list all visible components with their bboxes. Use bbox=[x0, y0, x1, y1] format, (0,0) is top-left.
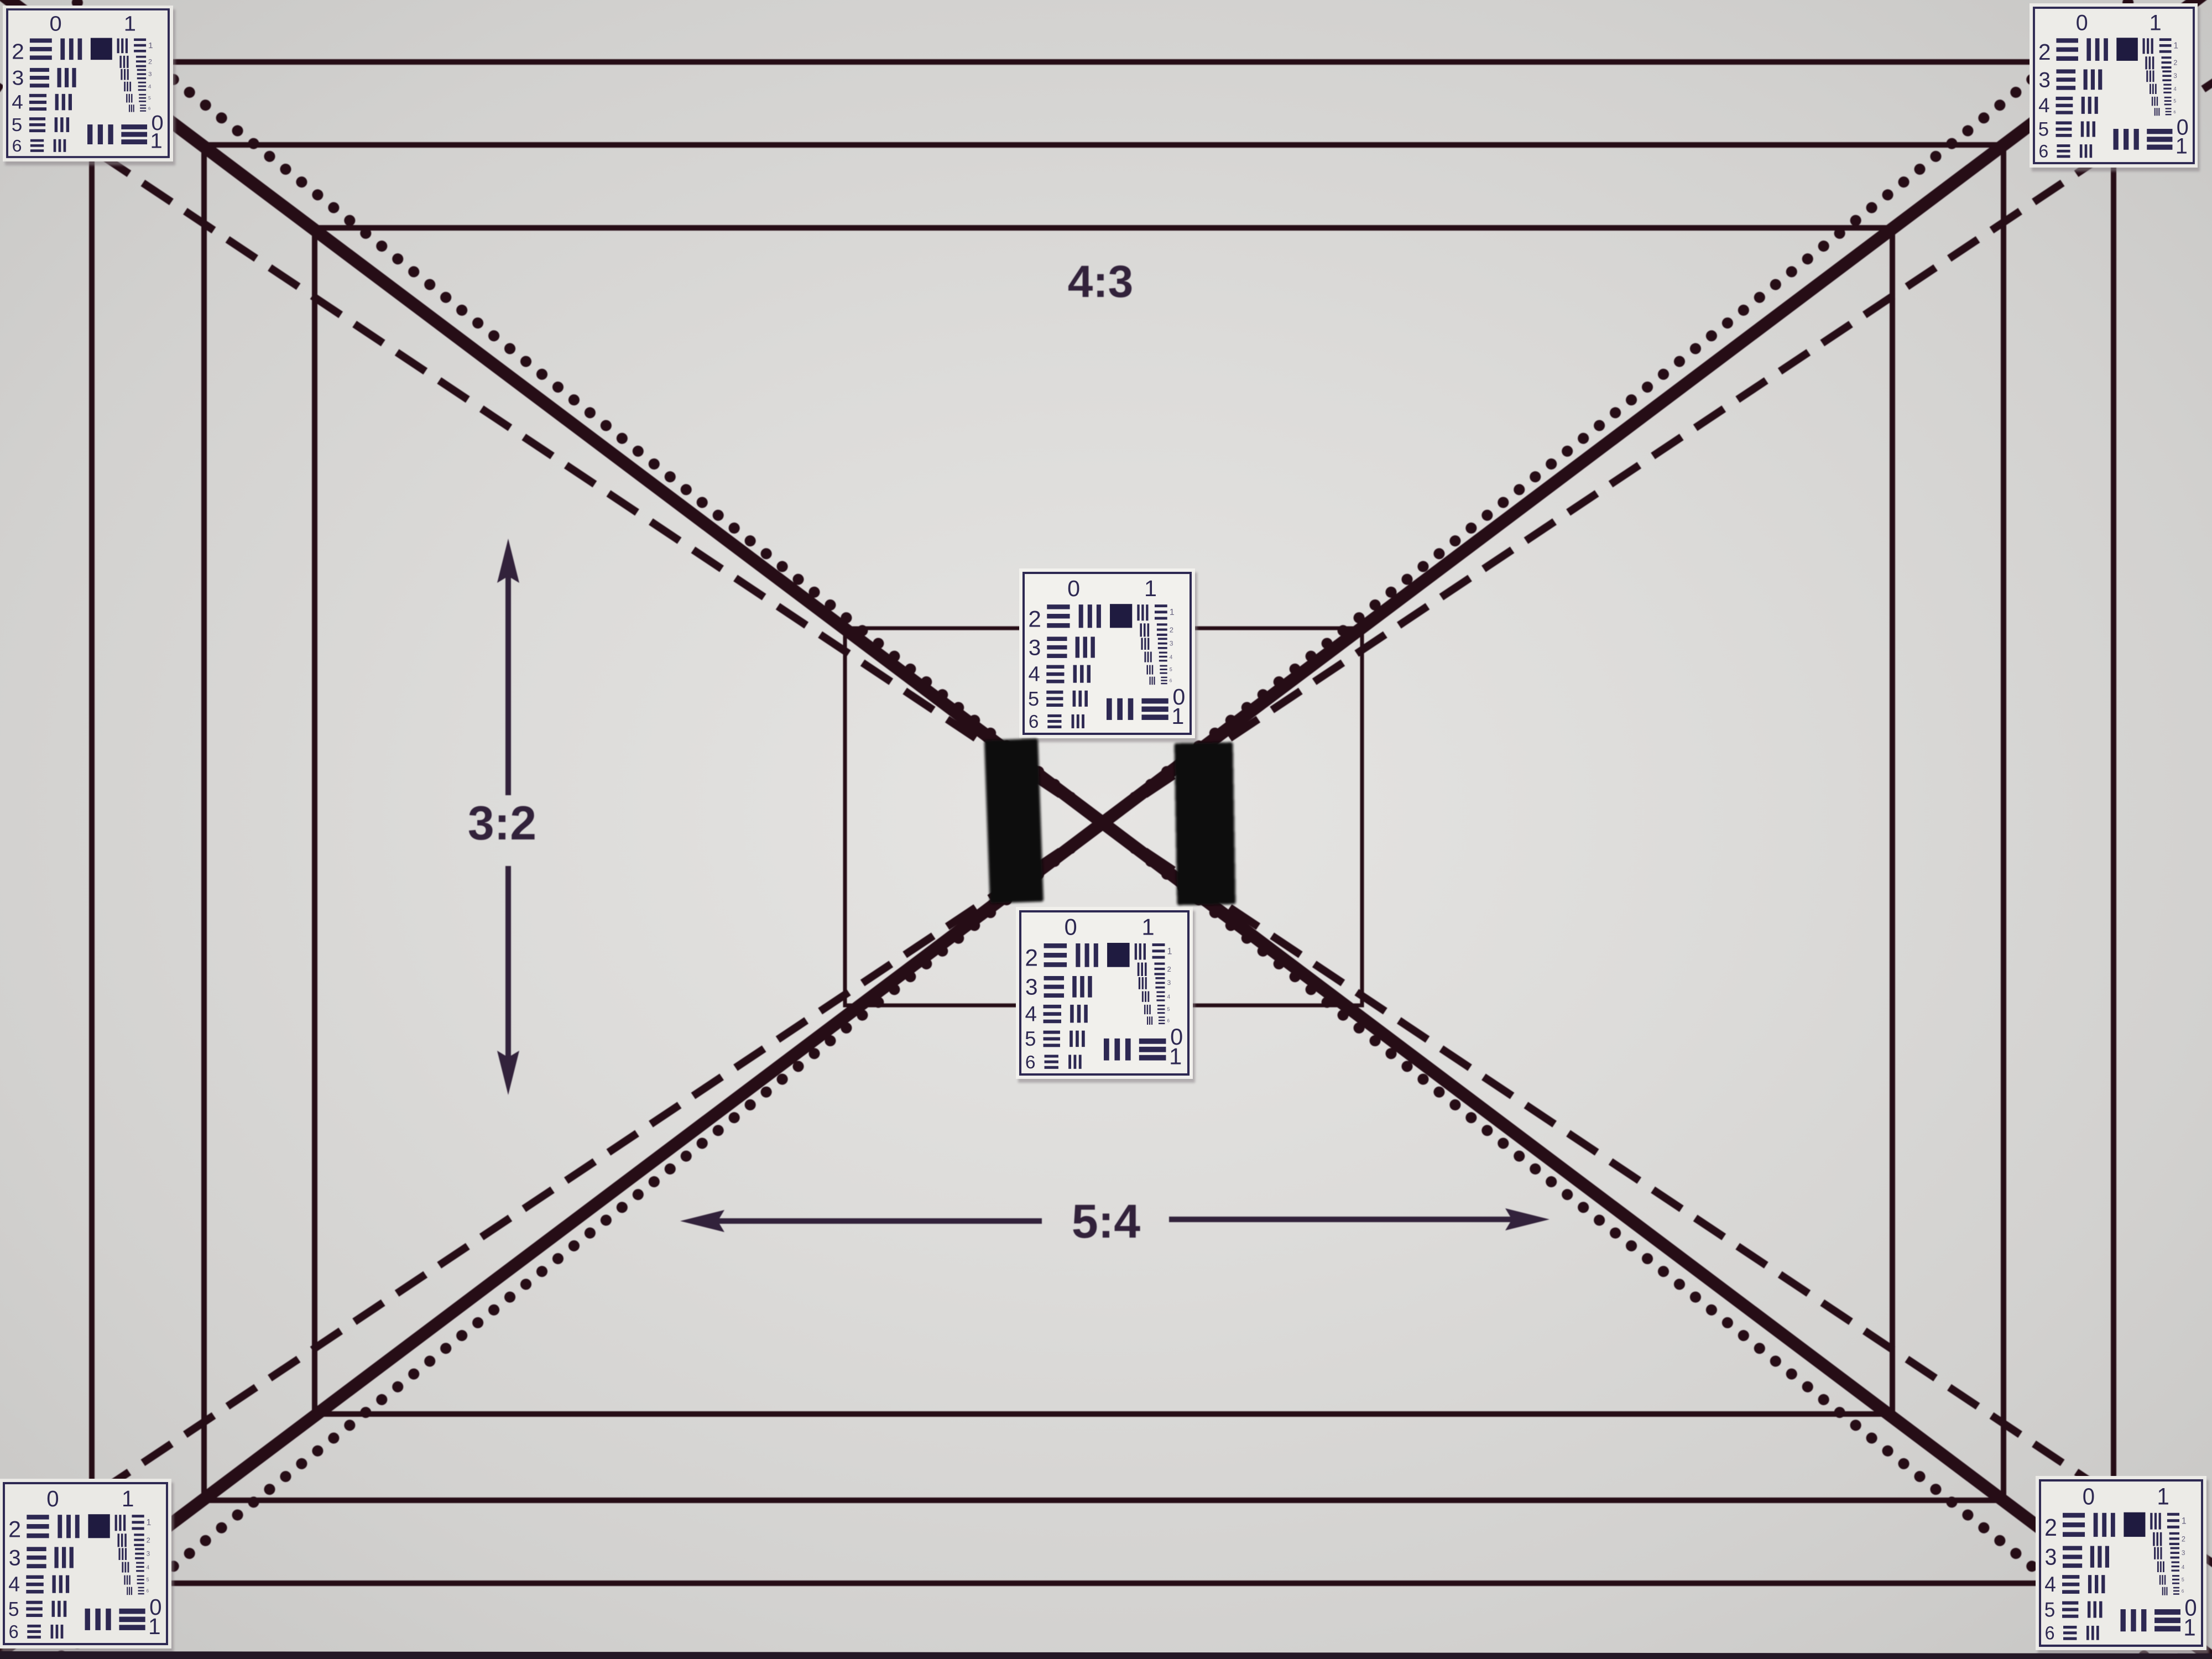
svg-text:3:2: 3:2 bbox=[468, 797, 536, 850]
svg-text:4:3: 4:3 bbox=[1068, 257, 1134, 307]
svg-text:5:4: 5:4 bbox=[1072, 1195, 1140, 1248]
